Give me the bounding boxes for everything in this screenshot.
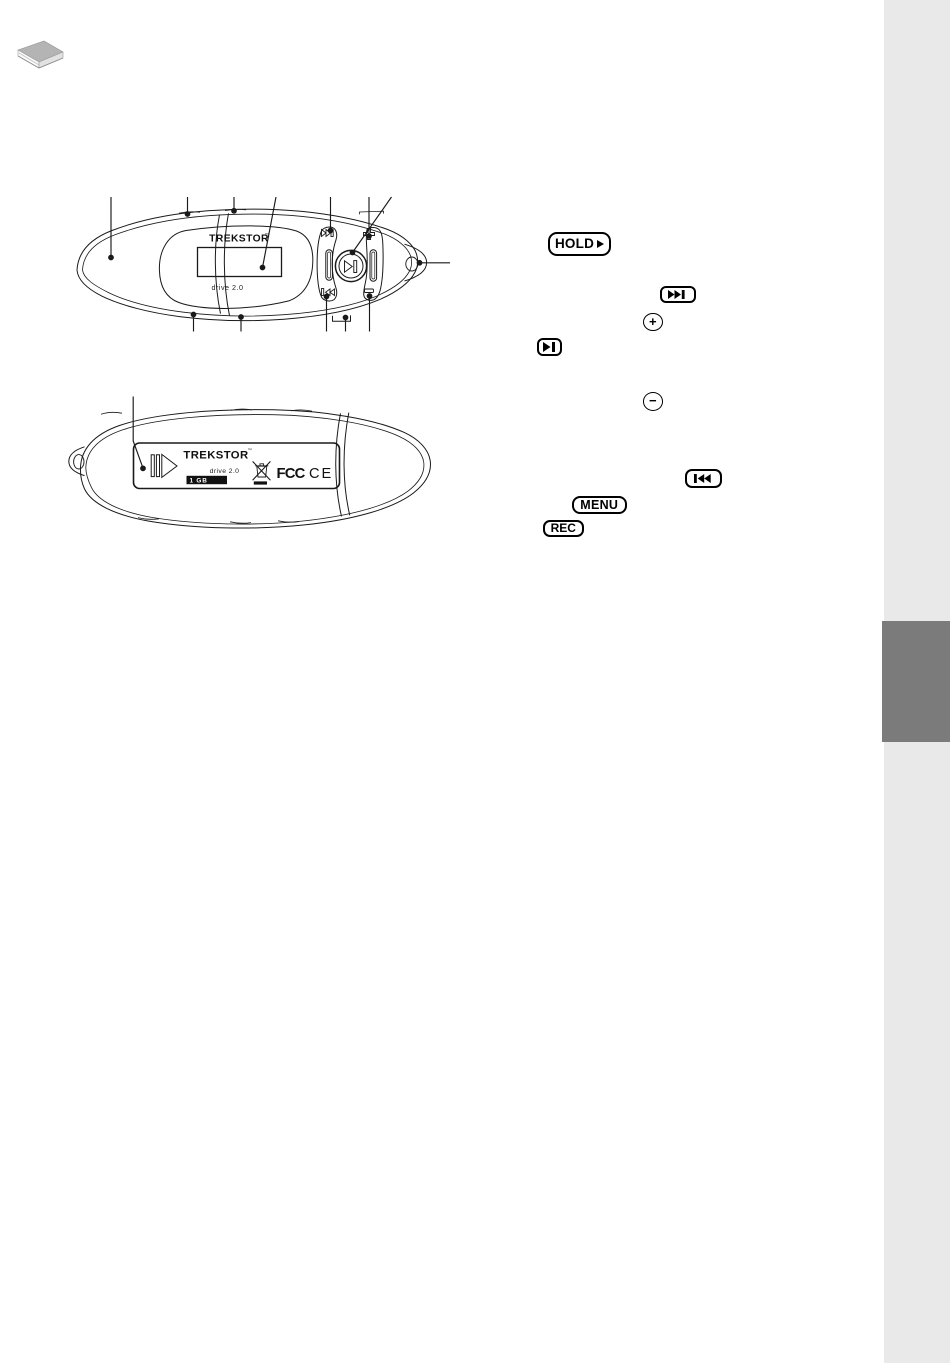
- volume-up-badge: +: [643, 313, 663, 331]
- skip-backward-badge: [685, 469, 722, 489]
- hold-arrow-icon: [597, 240, 604, 248]
- manual-page: { "page": { "background": "#ffffff", "si…: [0, 0, 950, 1363]
- buttons: [317, 227, 427, 301]
- weee-bin-icon: [253, 461, 271, 484]
- model-name-top: drive 2.0: [211, 283, 243, 292]
- cap-seam-back: [336, 413, 350, 517]
- capacity-label: 1 GB: [190, 478, 208, 485]
- book-icon: [11, 36, 69, 76]
- menu-badge: MENU: [572, 496, 628, 514]
- model-name-back: drive 2.0: [210, 468, 240, 475]
- brand-logo-back: TrekStor: [183, 450, 248, 462]
- chapter-tab-marker: [882, 621, 950, 742]
- play-pause-icon: [345, 261, 357, 273]
- device-back-view-figure: TrekStor ™ drive 2.0 1 GB FCC CE: [64, 393, 444, 538]
- skip-forward-badge: [660, 286, 697, 303]
- rec-label: REC: [551, 522, 576, 534]
- skip-backward-icon: [694, 474, 713, 483]
- skip-forward-icon: [668, 290, 687, 299]
- display: [198, 248, 282, 277]
- play-pause-badge: [537, 338, 563, 356]
- cap-seam: [215, 213, 229, 315]
- lanyard-eyelet-back: [69, 447, 85, 476]
- plus-label: +: [649, 315, 657, 328]
- minus-label: −: [649, 394, 657, 407]
- menu-label: MENU: [580, 499, 618, 512]
- ce-logo: CE: [309, 466, 333, 482]
- fcc-logo: FCC: [277, 466, 306, 482]
- brand-logo-top: TrekStor: [209, 234, 269, 245]
- device-back-body: [69, 409, 431, 528]
- right-slider: [370, 250, 377, 281]
- device-top-view-figure: TrekStor ™ drive 2.0: [70, 188, 455, 338]
- device-top-labels: TrekStor ™ drive 2.0: [209, 232, 269, 292]
- volume-down-icon: [365, 289, 374, 293]
- back-label: TrekStor ™ drive 2.0 1 GB FCC CE: [134, 443, 340, 489]
- callout-line-back: [133, 397, 145, 471]
- left-slider: [326, 250, 333, 280]
- volume-down-badge: −: [643, 392, 664, 411]
- trademark-back: ™: [248, 448, 253, 453]
- play-pause-icon: [543, 342, 556, 352]
- hold-label: HOLD: [555, 237, 594, 251]
- hold-switch-badge: HOLD: [548, 232, 611, 256]
- hold-symbol: [151, 454, 177, 477]
- rec-badge: REC: [543, 520, 584, 538]
